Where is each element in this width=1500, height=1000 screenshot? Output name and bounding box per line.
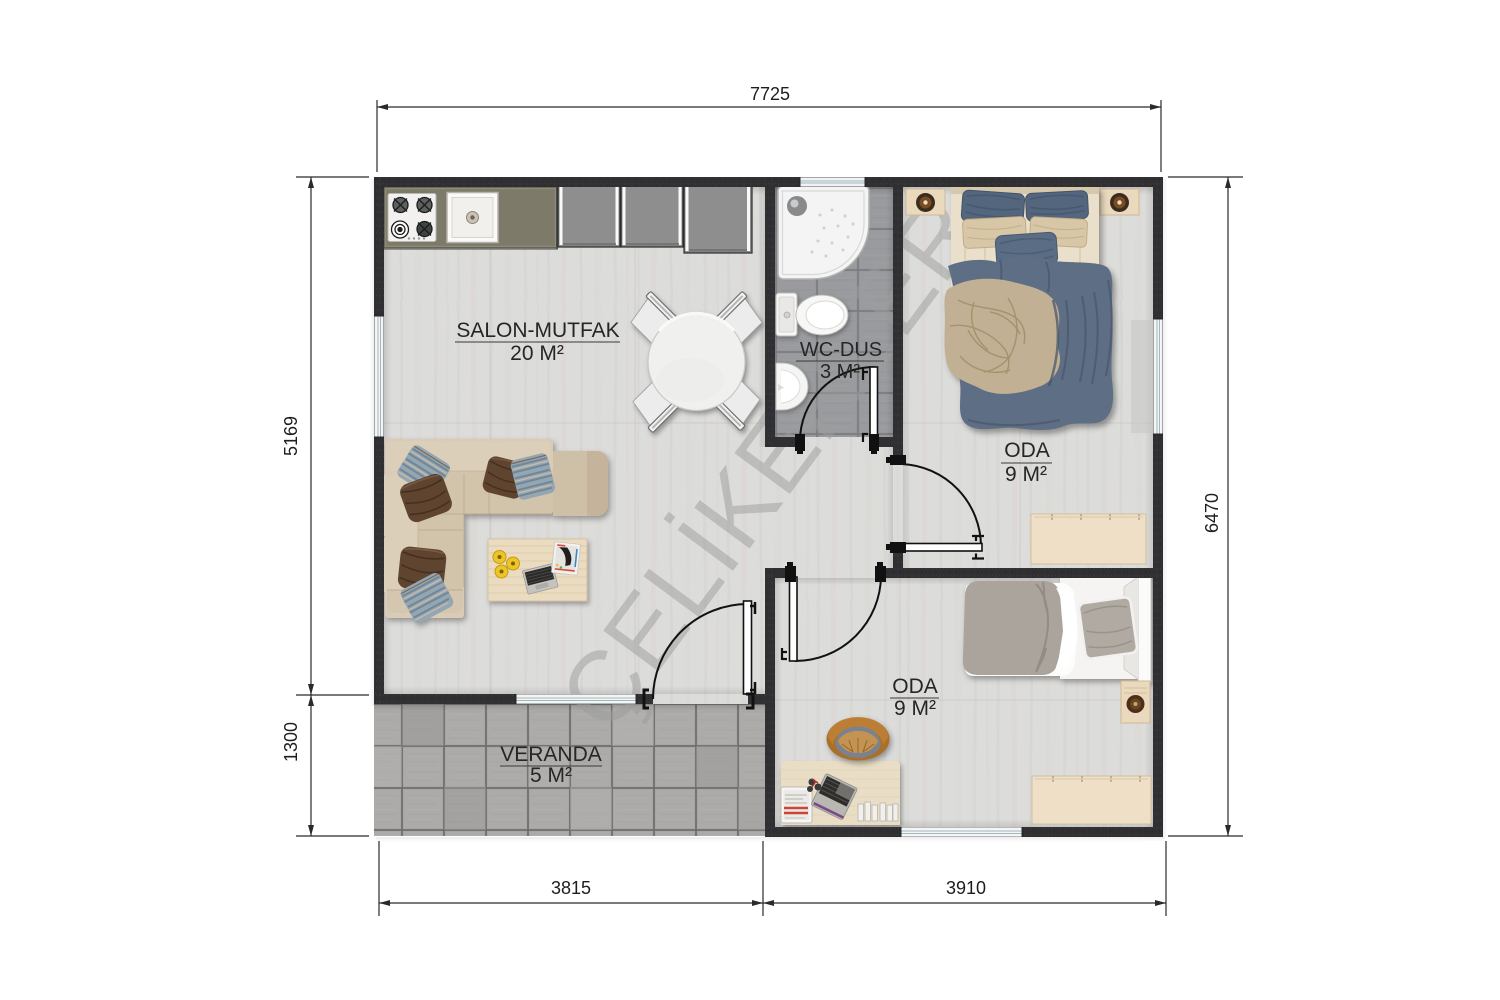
- svg-text:ODA: ODA: [1004, 439, 1050, 462]
- svg-text:7725: 7725: [750, 84, 790, 104]
- svg-text:ODA: ODA: [892, 675, 938, 698]
- svg-text:5169: 5169: [281, 416, 301, 456]
- svg-text:3815: 3815: [551, 878, 591, 898]
- svg-text:5 M²: 5 M²: [530, 764, 572, 787]
- svg-text:1300: 1300: [281, 722, 301, 762]
- svg-text:20 M²: 20 M²: [510, 342, 564, 365]
- svg-text:SALON-MUTFAK: SALON-MUTFAK: [456, 319, 619, 342]
- svg-text:9 M²: 9 M²: [1005, 463, 1047, 486]
- svg-text:3910: 3910: [946, 878, 986, 898]
- svg-text:6470: 6470: [1202, 493, 1222, 533]
- svg-text:VERANDA: VERANDA: [500, 743, 602, 766]
- svg-text:WC-DUS: WC-DUS: [800, 339, 882, 361]
- svg-text:3 M²: 3 M²: [820, 361, 860, 383]
- svg-text:9 M²: 9 M²: [894, 697, 936, 720]
